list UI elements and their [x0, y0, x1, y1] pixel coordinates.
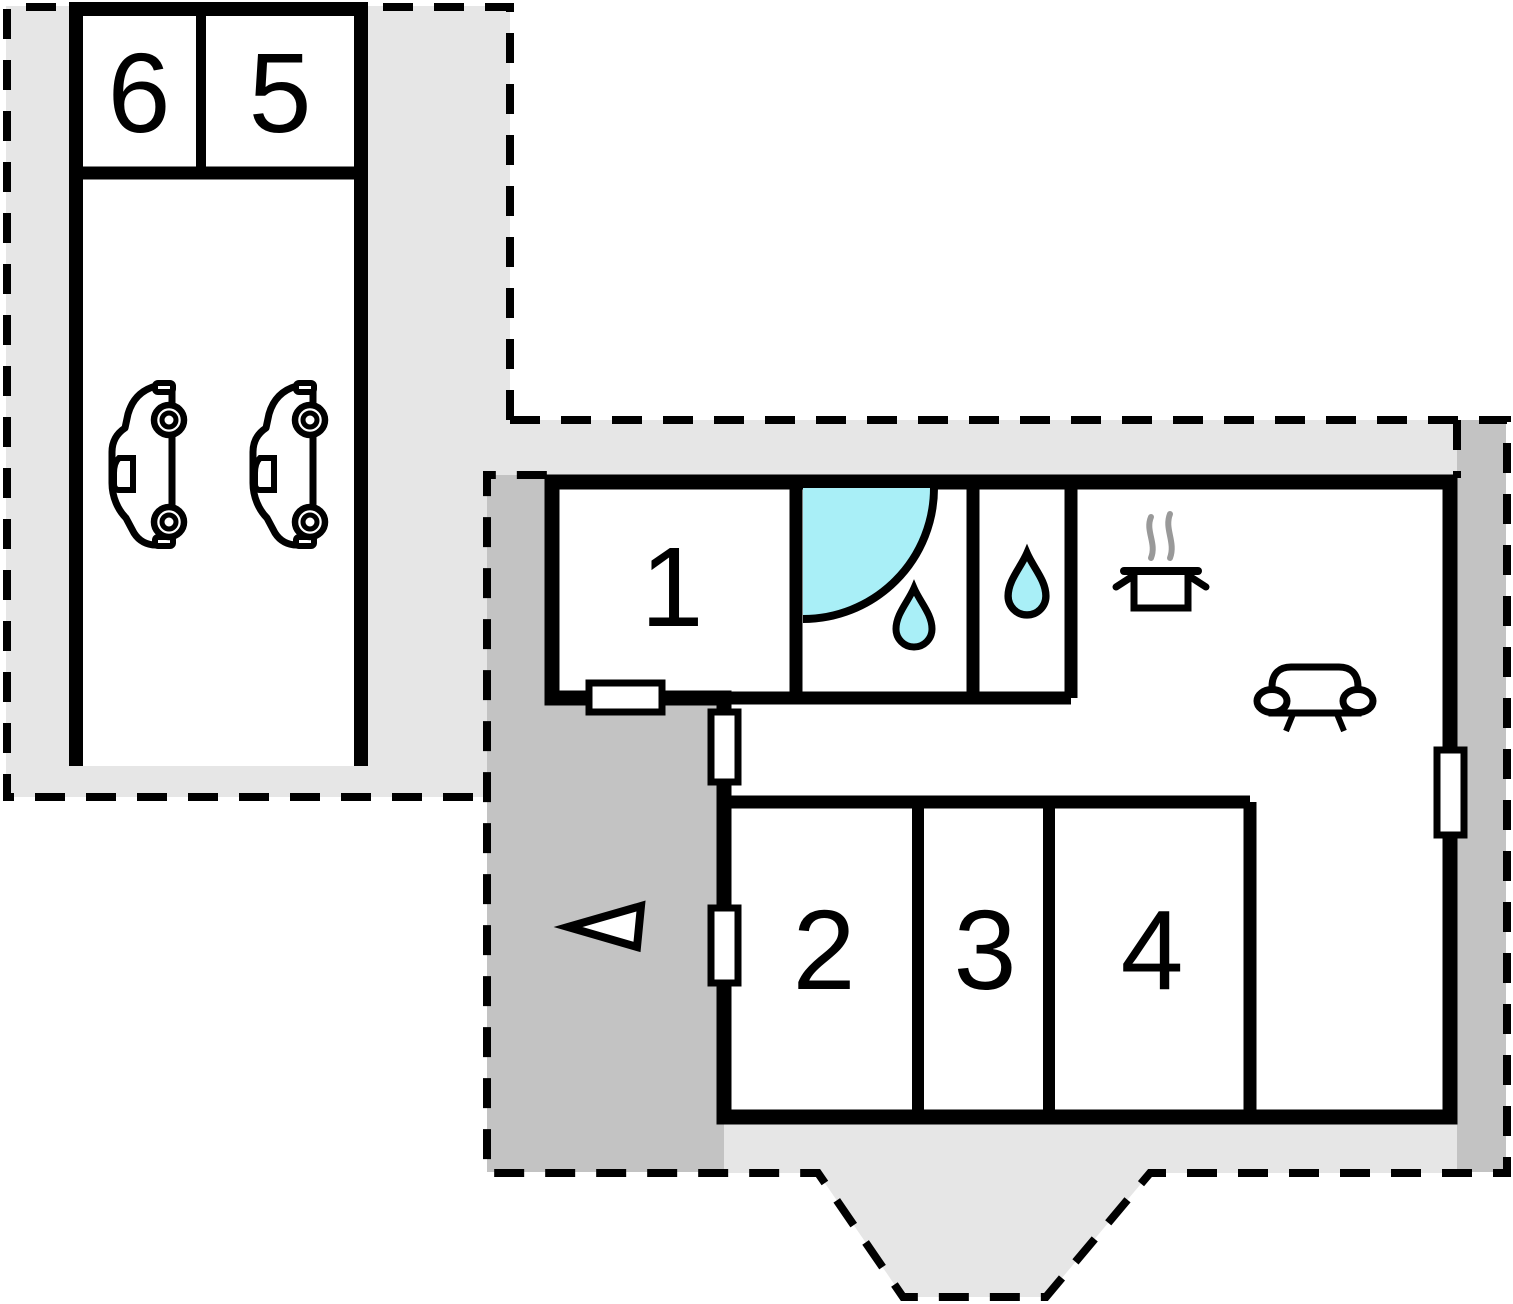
main-plot-bottom-strip	[717, 1110, 1457, 1297]
room-3-label: 3	[954, 887, 1017, 1013]
room-4-label: 4	[1121, 887, 1184, 1013]
room-1-label: 1	[641, 524, 704, 650]
room-2-label: 2	[793, 887, 856, 1013]
floor-plan-svg: 6 5	[0, 0, 1513, 1304]
room-5-label: 5	[249, 30, 312, 156]
main-plot-top-strip	[510, 420, 1457, 478]
door-marker-entrance	[711, 712, 738, 782]
door-marker-room2	[711, 908, 738, 983]
garage-building: 6 5	[76, 9, 361, 766]
floor-plan-page: 6 5	[0, 0, 1513, 1304]
door-marker-living	[1437, 750, 1464, 835]
door-marker-room1	[589, 683, 662, 712]
room-6-label: 6	[108, 30, 171, 156]
